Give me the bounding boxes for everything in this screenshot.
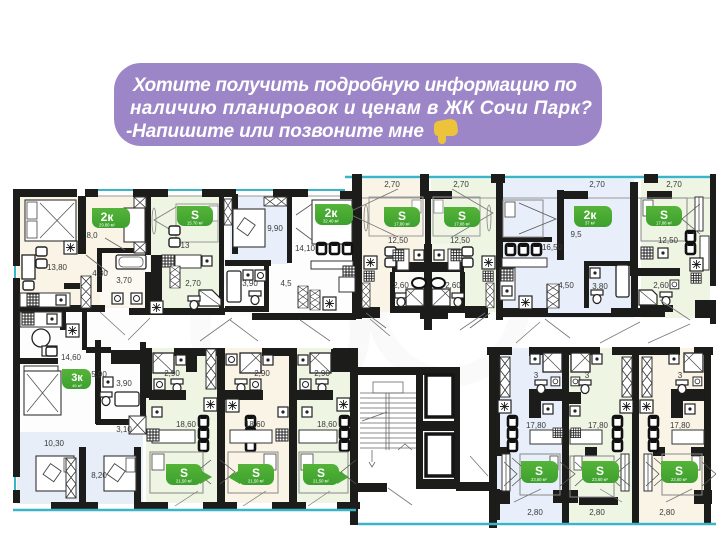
- svg-text:23,60 м²: 23,60 м²: [671, 477, 688, 482]
- svg-text:3,90: 3,90: [242, 279, 258, 288]
- svg-text:18,60: 18,60: [176, 420, 197, 429]
- svg-text:17,80: 17,80: [588, 421, 609, 430]
- svg-text:21,50 м²: 21,50 м²: [248, 479, 265, 484]
- svg-text:3,90: 3,90: [116, 379, 132, 388]
- svg-text:23,60 м²: 23,60 м²: [531, 477, 548, 482]
- svg-text:2,70: 2,70: [453, 180, 469, 189]
- svg-text:3: 3: [678, 371, 683, 380]
- svg-text:2,70: 2,70: [384, 180, 400, 189]
- svg-text:12,50: 12,50: [388, 236, 409, 245]
- svg-text:2,90: 2,90: [314, 369, 330, 378]
- svg-text:16,50: 16,50: [542, 243, 563, 252]
- svg-text:2,70: 2,70: [666, 180, 682, 189]
- svg-text:Хотите получить подробную инфо: Хотите получить подробную информацию по: [132, 75, 577, 96]
- svg-text:14,60: 14,60: [61, 353, 82, 362]
- svg-text:13,80: 13,80: [47, 263, 68, 272]
- svg-text:17,80 м²: 17,80 м²: [394, 222, 411, 227]
- svg-text:4,30: 4,30: [92, 269, 108, 278]
- svg-text:21,50 м²: 21,50 м²: [313, 479, 330, 484]
- svg-text:3: 3: [534, 371, 539, 380]
- svg-text:12,50: 12,50: [450, 236, 471, 245]
- svg-text:8,20: 8,20: [91, 471, 107, 480]
- svg-text:3,80: 3,80: [592, 282, 608, 291]
- svg-text:2,90: 2,90: [164, 369, 180, 378]
- svg-text:-Напишите или позвоните мне: -Напишите или позвоните мне: [126, 121, 424, 142]
- svg-text:S: S: [596, 464, 604, 478]
- svg-text:2,60: 2,60: [393, 281, 409, 290]
- svg-text:2,90: 2,90: [254, 369, 270, 378]
- svg-text:4,50: 4,50: [558, 281, 574, 290]
- svg-text:29.80 м²: 29.80 м²: [99, 223, 116, 228]
- svg-text:21,50 м²: 21,50 м²: [176, 479, 193, 484]
- svg-text:2,70: 2,70: [589, 180, 605, 189]
- svg-text:13: 13: [181, 241, 190, 250]
- svg-text:32.40 м²: 32.40 м²: [323, 219, 340, 224]
- svg-text:3: 3: [585, 371, 590, 380]
- svg-text:17,88 м²: 17,88 м²: [454, 222, 471, 227]
- svg-text:17,80: 17,80: [526, 421, 547, 430]
- svg-text:12,50: 12,50: [658, 236, 679, 245]
- svg-text:23,60 м²: 23,60 м²: [592, 477, 609, 482]
- svg-text:17,80: 17,80: [670, 421, 691, 430]
- svg-text:15.70 м²: 15.70 м²: [187, 221, 204, 226]
- svg-text:9,90: 9,90: [267, 224, 283, 233]
- svg-text:2,80: 2,80: [589, 508, 605, 517]
- svg-text:4,5: 4,5: [280, 279, 292, 288]
- svg-text:5,90: 5,90: [91, 370, 107, 379]
- svg-text:3,70: 3,70: [116, 276, 132, 285]
- svg-text:17,88 м²: 17,88 м²: [656, 221, 673, 226]
- svg-text:наличию планировок и ценам в Ж: наличию планировок и ценам в ЖК Сочи Пар…: [130, 98, 592, 119]
- svg-text:10,30: 10,30: [44, 439, 65, 448]
- svg-text:S: S: [535, 464, 543, 478]
- svg-text:18,60: 18,60: [245, 420, 266, 429]
- svg-text:37 м²: 37 м²: [585, 221, 596, 226]
- svg-text:14,10: 14,10: [295, 244, 316, 253]
- svg-text:S: S: [675, 464, 683, 478]
- svg-text:2,80: 2,80: [527, 508, 543, 517]
- svg-text:3,10: 3,10: [116, 425, 132, 434]
- svg-text:18,60: 18,60: [317, 420, 338, 429]
- svg-text:2,80: 2,80: [659, 508, 675, 517]
- svg-text:2,60: 2,60: [445, 281, 461, 290]
- svg-text:2,70: 2,70: [185, 279, 201, 288]
- svg-text:46 м²: 46 м²: [72, 383, 82, 388]
- svg-text:8,0: 8,0: [86, 231, 98, 240]
- svg-text:9,5: 9,5: [570, 230, 582, 239]
- svg-text:2,60: 2,60: [653, 281, 669, 290]
